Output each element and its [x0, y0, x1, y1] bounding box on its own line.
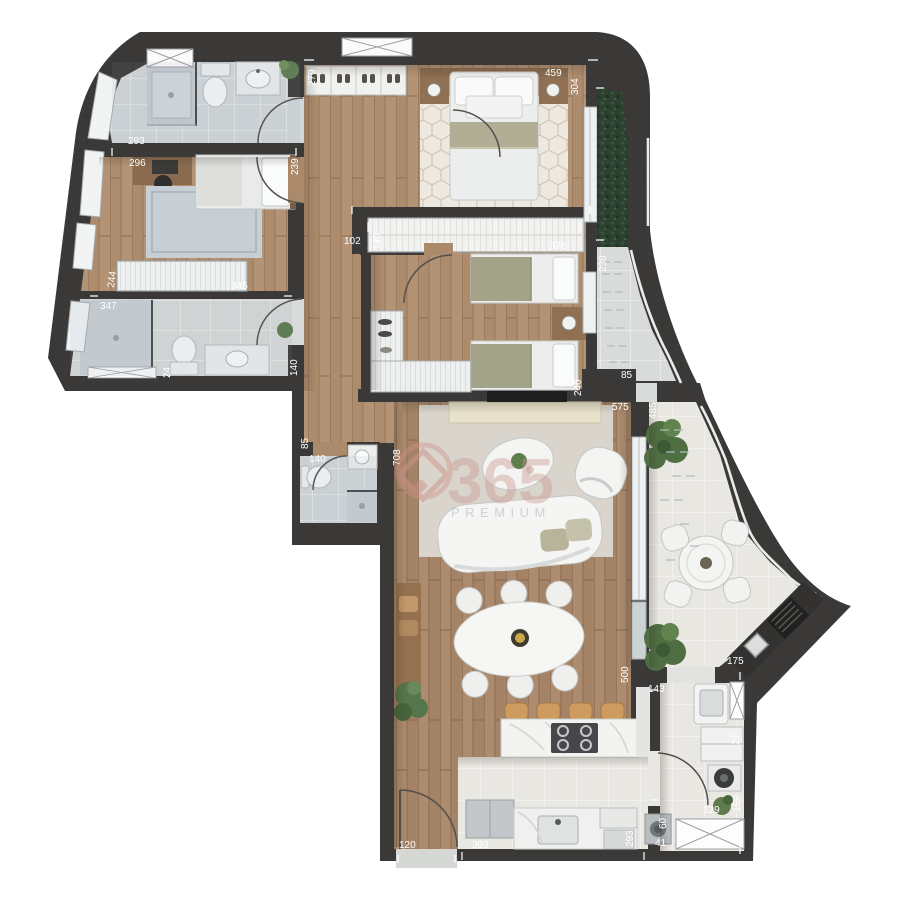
svg-text:296: 296	[129, 158, 146, 169]
svg-text:500: 500	[620, 666, 631, 683]
svg-text:85: 85	[300, 437, 311, 449]
svg-text:PREMIUM: PREMIUM	[451, 505, 551, 520]
svg-text:575: 575	[612, 402, 629, 413]
svg-text:279: 279	[307, 69, 318, 86]
svg-text:230: 230	[598, 255, 609, 272]
svg-text:140: 140	[372, 233, 383, 250]
svg-text:459: 459	[545, 68, 562, 79]
svg-text:27: 27	[731, 733, 742, 745]
svg-text:293: 293	[625, 830, 636, 847]
svg-text:60: 60	[658, 817, 669, 829]
svg-text:120: 120	[399, 840, 416, 851]
svg-text:140: 140	[289, 359, 300, 376]
svg-text:159: 159	[732, 795, 743, 812]
svg-text:240: 240	[573, 379, 584, 396]
svg-text:303: 303	[472, 840, 489, 851]
svg-text:304: 304	[570, 78, 581, 95]
svg-text:293: 293	[128, 136, 145, 147]
svg-text:24: 24	[162, 366, 173, 378]
svg-text:239: 239	[290, 158, 301, 175]
svg-text:244: 244	[106, 270, 119, 288]
svg-text:129: 129	[703, 805, 720, 816]
svg-text:85: 85	[621, 370, 633, 381]
svg-text:485: 485	[648, 402, 659, 419]
svg-text:345: 345	[231, 281, 248, 292]
svg-text:102: 102	[344, 236, 361, 247]
svg-text:175: 175	[727, 656, 744, 667]
svg-text:140: 140	[309, 454, 326, 465]
svg-text:347: 347	[100, 301, 117, 312]
svg-text:143: 143	[648, 684, 665, 695]
svg-text:41: 41	[655, 838, 667, 849]
svg-text:376: 376	[550, 241, 567, 252]
